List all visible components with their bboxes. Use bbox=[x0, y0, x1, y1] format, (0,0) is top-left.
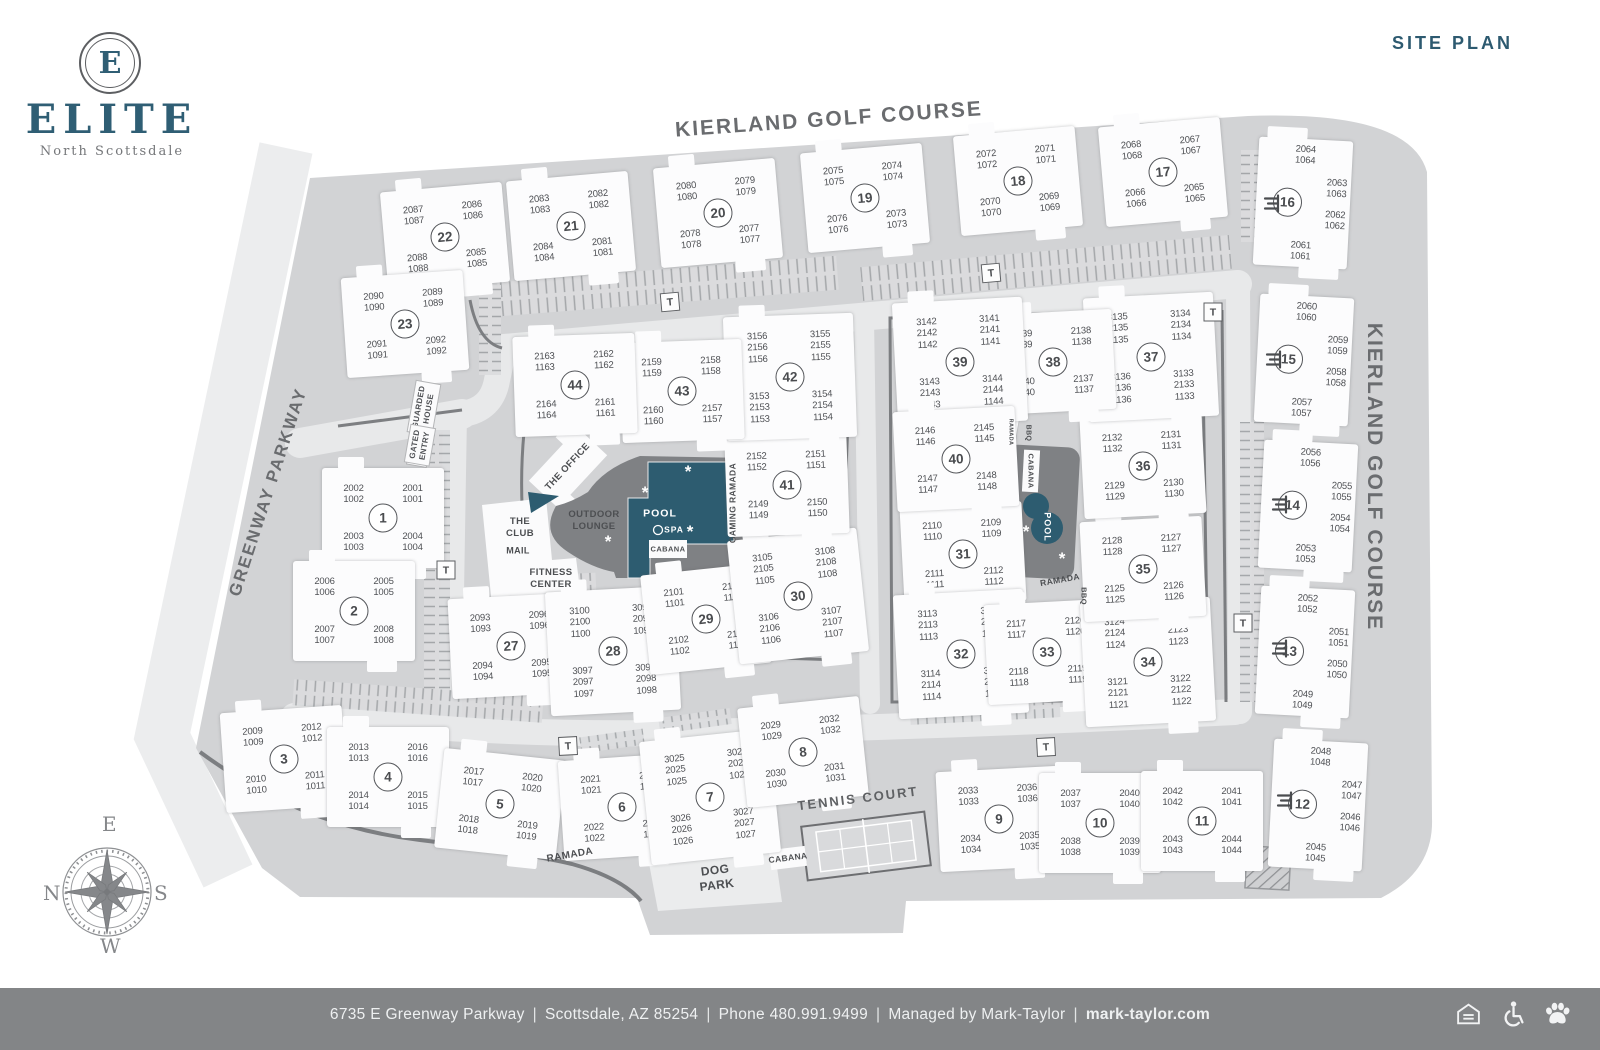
pool-cabana-building bbox=[649, 540, 687, 558]
compass-bottom: W bbox=[100, 934, 121, 958]
page-title: SITE PLAN bbox=[1392, 33, 1552, 54]
compass-left: N bbox=[43, 881, 61, 905]
second-pool bbox=[1031, 512, 1063, 544]
footer-icons bbox=[1455, 1000, 1572, 1028]
footer-website[interactable]: mark-taylor.com bbox=[1086, 1006, 1210, 1023]
site-map: 2002100220011001200310032004100412006100… bbox=[0, 0, 1600, 1050]
footer-address: 6735 E Greenway Parkway bbox=[330, 1006, 525, 1023]
wheelchair-icon bbox=[1500, 1000, 1525, 1028]
brand-name: ELITE bbox=[24, 96, 200, 143]
brand-subtitle: North Scottsdale bbox=[24, 144, 200, 159]
dog-park-area bbox=[645, 833, 782, 911]
footer-bar: 6735 E Greenway Parkway|Scottsdale, AZ 8… bbox=[0, 988, 1600, 1050]
compass-right: S bbox=[154, 881, 168, 905]
compass-rose: E N S W bbox=[40, 826, 174, 960]
paw-icon bbox=[1543, 1001, 1572, 1027]
hatched-area bbox=[1245, 846, 1291, 890]
footer-city: Scottsdale, AZ 85254 bbox=[545, 1006, 698, 1023]
compass-top: E bbox=[102, 812, 117, 836]
footer-phone: Phone 480.991.9499 bbox=[719, 1006, 868, 1023]
logo-letter: E bbox=[99, 46, 122, 81]
equal-housing-icon bbox=[1455, 1002, 1482, 1026]
map-underlay bbox=[0, 0, 1600, 1050]
logo-monogram-icon: E bbox=[79, 32, 141, 94]
site-plan-page: 2002100220011001200310032004100412006100… bbox=[0, 0, 1600, 1050]
second-cabana-building bbox=[1022, 450, 1040, 493]
footer-text: 6735 E Greenway Parkway|Scottsdale, AZ 8… bbox=[0, 1006, 1540, 1024]
footer-managed: Managed by Mark-Taylor bbox=[888, 1006, 1065, 1023]
